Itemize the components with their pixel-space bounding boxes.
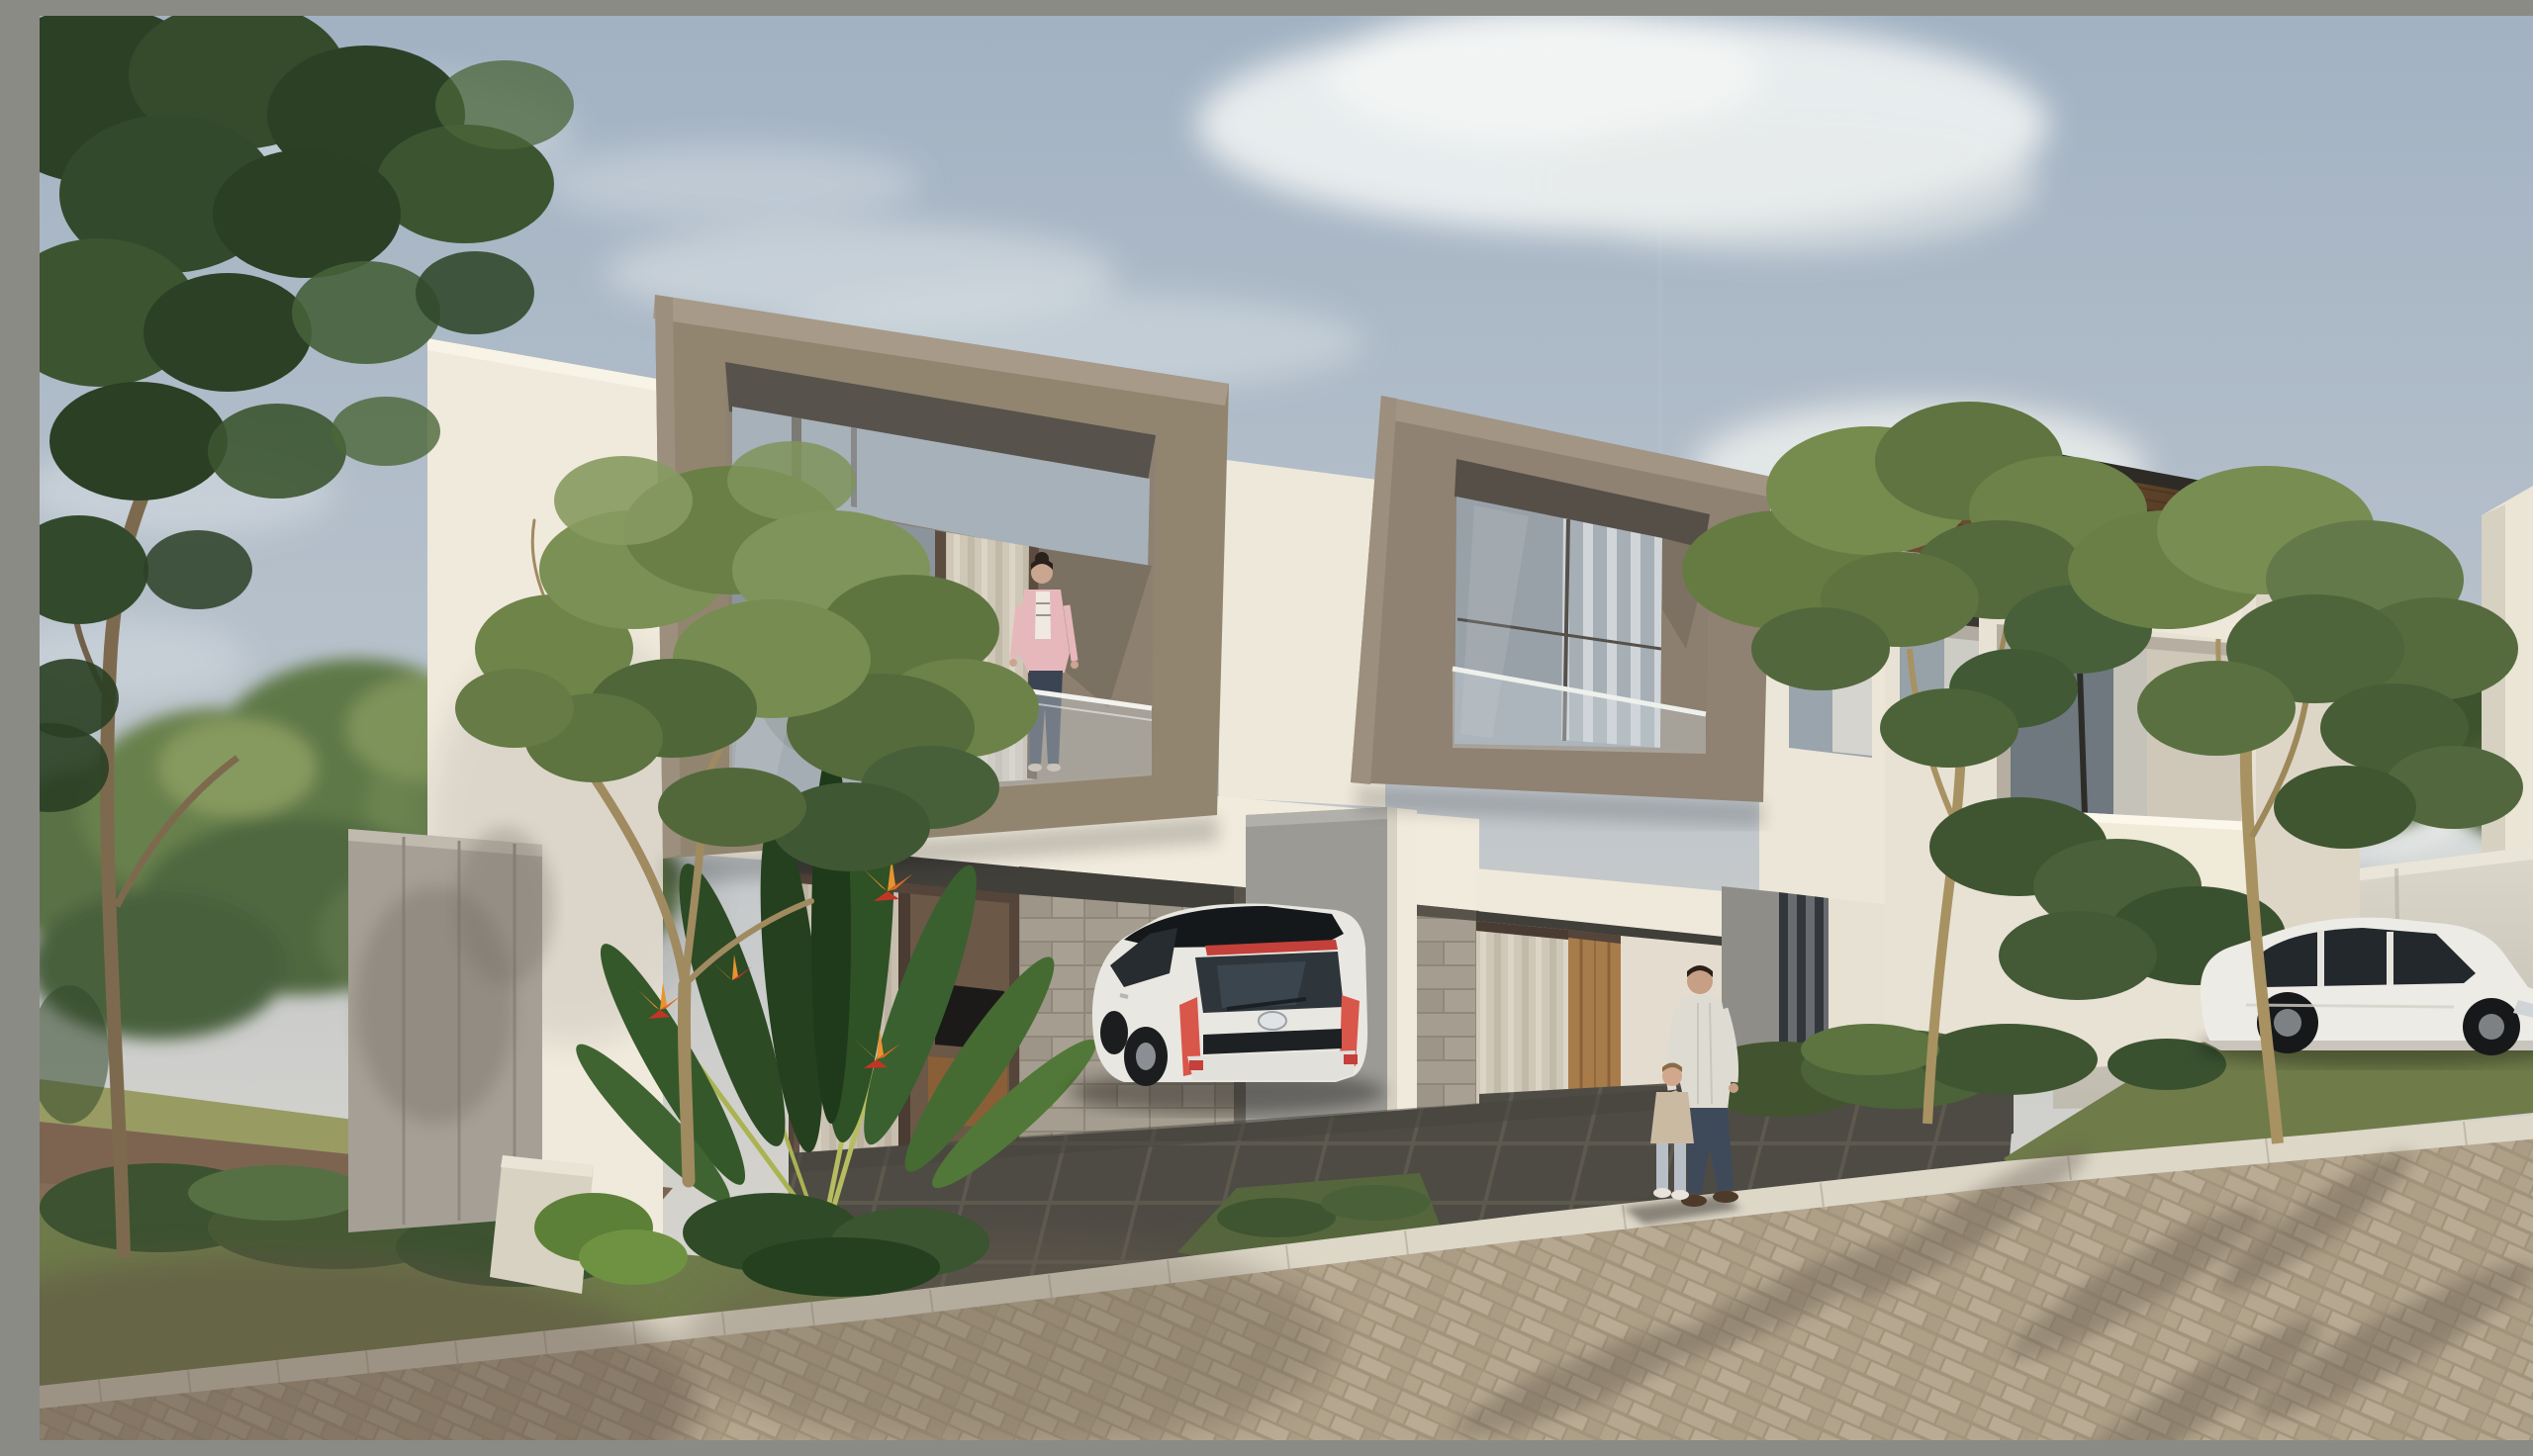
hyundai-logo xyxy=(1259,1012,1286,1030)
child-pants xyxy=(1656,1143,1668,1189)
architectural-render xyxy=(40,16,2533,1440)
